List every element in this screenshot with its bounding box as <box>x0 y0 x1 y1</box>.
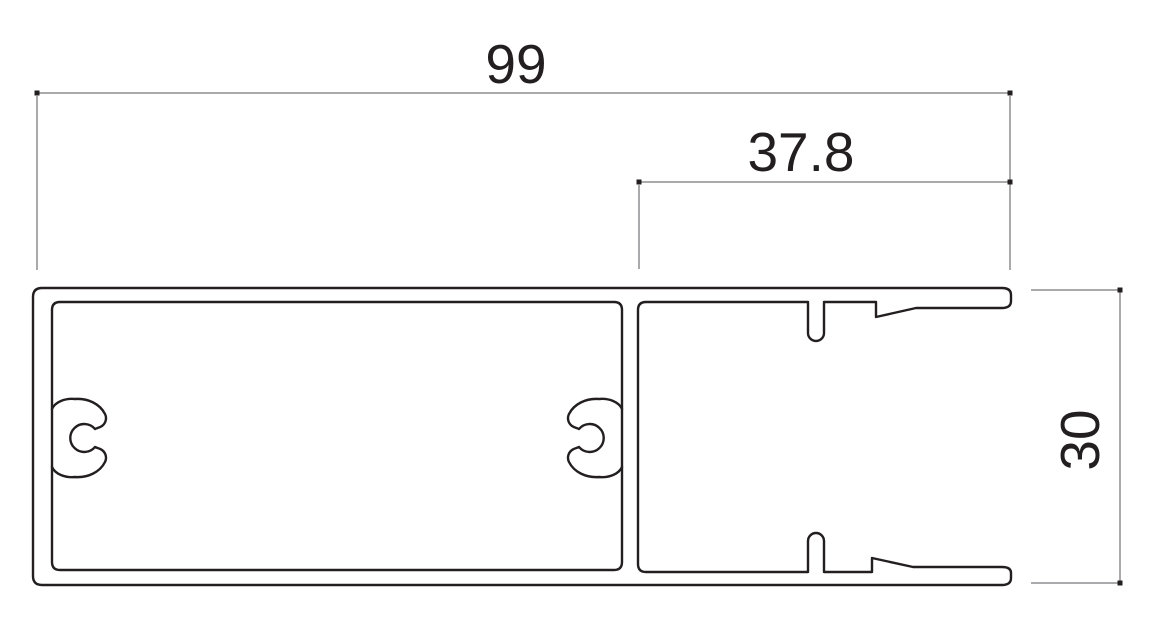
dimension-overall-height: 30 <box>1031 288 1123 586</box>
tick-mark-left <box>637 180 642 185</box>
dimension-overall-width: 99 <box>35 33 1013 270</box>
profile-cross-section <box>33 288 1011 585</box>
dimension-channel-width: 37.8 <box>637 121 1013 269</box>
right-screw-boss <box>568 399 622 477</box>
profile-outer-outline <box>33 288 1011 585</box>
tick-mark-bottom <box>1118 581 1123 586</box>
tick-mark-right <box>1008 91 1013 96</box>
tick-mark-right <box>1008 180 1013 185</box>
dimension-value-channel-width: 37.8 <box>747 121 854 183</box>
left-screw-boss <box>52 399 106 477</box>
left-cavity-outline <box>52 302 622 570</box>
technical-drawing-canvas: 99 37.8 30 <box>0 0 1158 633</box>
tick-mark-top <box>1118 288 1123 293</box>
dimension-value-overall-width: 99 <box>485 33 546 95</box>
profile-drawing-svg: 99 37.8 30 <box>0 0 1158 633</box>
dimension-value-overall-height: 30 <box>1049 409 1111 470</box>
tick-mark-left <box>35 91 40 96</box>
